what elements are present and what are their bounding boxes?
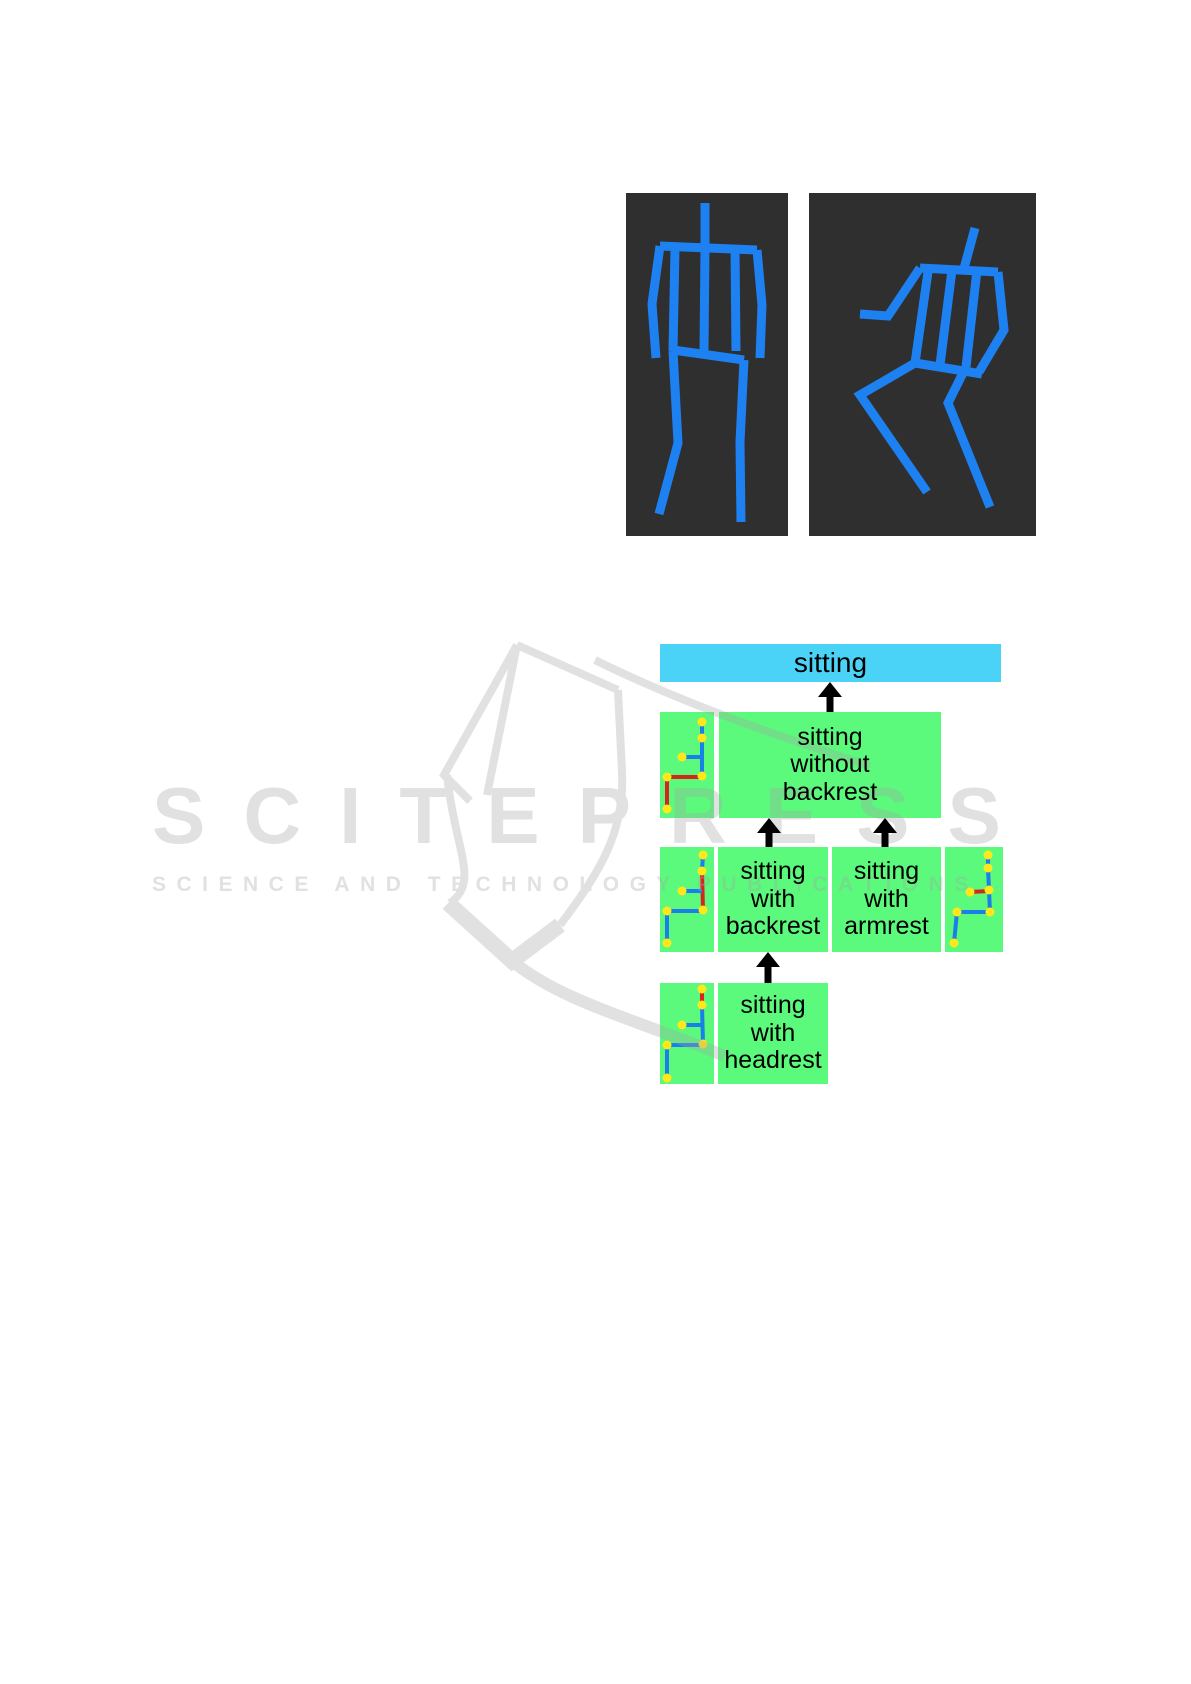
- node-label-line: headrest: [724, 1047, 821, 1075]
- skeleton-spine: [940, 270, 952, 365]
- skeleton-left-arm: [652, 246, 660, 358]
- pose-thumbnail-without-backrest: [660, 712, 714, 818]
- skeleton-left-leg: [659, 351, 678, 514]
- node-label-line: sitting: [740, 858, 805, 886]
- up-arrow-icon: [756, 818, 782, 847]
- up-arrow-icon: [755, 952, 781, 983]
- skeleton-spine: [704, 248, 705, 351]
- sitting-skeleton-figure: [809, 193, 1036, 536]
- skeleton-left-arm: [860, 268, 920, 316]
- skeleton-head: [963, 228, 975, 272]
- pose-thumbnail-with-headrest: [660, 983, 714, 1084]
- up-arrow-icon: [817, 682, 843, 712]
- pose-thumbnail-with-backrest: [660, 847, 714, 952]
- node-sitting-without-backrest: sitting without backrest: [719, 712, 941, 818]
- skeleton-hips: [673, 350, 744, 360]
- paper-figure-page: sitting sitting without backrest: [0, 0, 1191, 1684]
- node-sitting-with-headrest: sitting with headrest: [718, 983, 828, 1084]
- skeleton-hips: [915, 363, 982, 374]
- skeleton-torso-left: [673, 248, 675, 351]
- node-label-line: with: [751, 1020, 795, 1048]
- node-label-line: without: [790, 751, 869, 779]
- node-sitting-with-armrest: sitting with armrest: [832, 847, 941, 952]
- up-arrow-icon: [872, 818, 898, 847]
- node-label-line: sitting: [797, 724, 862, 752]
- node-label-line: with: [864, 886, 908, 914]
- node-label-line: backrest: [783, 779, 877, 807]
- node-sitting-with-backrest: sitting with backrest: [718, 847, 828, 952]
- node-label-line: armrest: [844, 913, 929, 941]
- skeleton-right-leg: [740, 360, 744, 522]
- node-sitting-label: sitting: [794, 648, 867, 678]
- skeleton-torso-right: [735, 249, 736, 351]
- node-label-line: sitting: [740, 992, 805, 1020]
- skeleton-right-arm: [757, 250, 762, 358]
- node-label-line: sitting: [854, 858, 919, 886]
- standing-pose-panel: [626, 193, 788, 536]
- pose-thumbnail-with-armrest: [945, 847, 1003, 952]
- node-label-line: with: [751, 886, 795, 914]
- node-sitting: sitting: [660, 644, 1001, 682]
- skeleton-left-leg: [860, 363, 927, 492]
- skeleton-right-arm: [979, 272, 1004, 372]
- sitting-pose-panel: [809, 193, 1036, 536]
- skeleton-torso-left: [915, 272, 928, 363]
- skeleton-right-leg: [948, 373, 990, 507]
- node-label-line: backrest: [726, 913, 820, 941]
- skeleton-torso-right: [966, 270, 977, 367]
- standing-skeleton-figure: [626, 193, 788, 536]
- skeleton-shoulders: [920, 268, 998, 272]
